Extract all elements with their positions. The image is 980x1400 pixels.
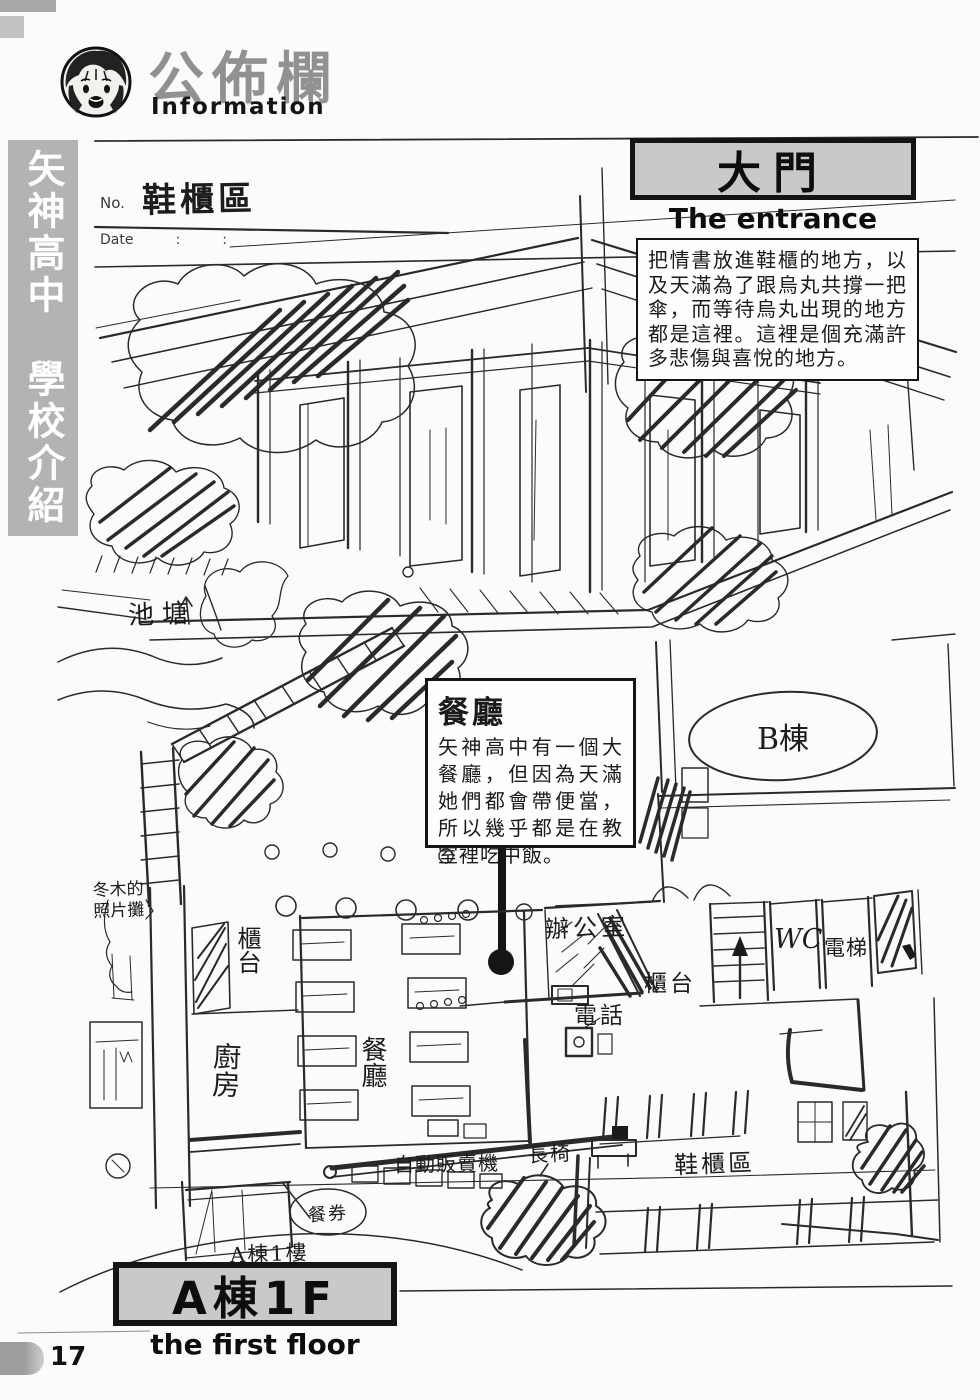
notepad-date-label: Date (100, 232, 133, 248)
notepad-date-row: Date : : (100, 232, 320, 248)
elevator-label: 電梯 (824, 932, 868, 962)
entrance-subtitle: The entrance (630, 202, 916, 235)
foliage-left-tree (128, 264, 415, 453)
notepad-colon-1: : (175, 232, 180, 248)
meal-ticket-label: 餐券 (299, 1198, 357, 1228)
entrance-title: 大門 (717, 137, 829, 201)
avatar-girl-icon (58, 44, 134, 120)
floor-title-box: A棟1F (113, 1262, 397, 1326)
bench-label: 長椅 (527, 1137, 572, 1168)
building-b-label: B棟 (683, 688, 883, 784)
pond-label: 池塘 (127, 593, 196, 632)
page-subtitle: Information (151, 94, 326, 120)
cafeteria-callout-box: 餐廳 矢神高中有一個大餐廳，但因為天滿她們都會帶便當，所以幾乎都是在教室裡吃中飯… (425, 678, 636, 848)
sidebar-chapter-text: 矢神高中 學校介紹 (24, 149, 62, 527)
vending-machine-label: 自動販賣機 (394, 1147, 499, 1178)
shoe-area-sketch-label: 鞋櫃區 (142, 171, 257, 222)
page-tab (0, 1342, 44, 1375)
sidebar-chapter-band: 矢神高中 學校介紹 (8, 140, 78, 536)
entrance-description-box: 把情書放進鞋櫃的地方，以及天滿為了跟烏丸共撐一把傘，而等待烏丸出現的地方都是這裡… (636, 238, 919, 381)
pond-sketch (58, 562, 288, 729)
manga-guide-page: { "page": { "number": "17" }, "header": … (0, 0, 980, 1400)
photo-stand-line1: 冬木的 (92, 879, 144, 902)
foliage-right-lower (633, 527, 788, 632)
notepad-no-label: No. (100, 194, 125, 212)
wc-label: WC (774, 924, 822, 955)
counter-right-label: 櫃台 (644, 964, 696, 998)
mid-tree-small (179, 737, 283, 828)
office-label: 辦公室 (544, 907, 629, 945)
floor-title: A棟1F (172, 1262, 338, 1327)
cafeteria-map-label: 餐廳 (354, 1036, 391, 1128)
floor-subtitle: the first floor (113, 1328, 397, 1361)
photo-stand-line2: 照片攤 (93, 900, 145, 923)
walkway-path (141, 628, 404, 906)
foliage-left-bush (86, 460, 239, 575)
telephone-label: 電話 (574, 996, 626, 1030)
kitchen-label: 廚房 (202, 1041, 245, 1138)
shoe-lockers-map-label: 鞋櫃區 (673, 1143, 755, 1181)
corner-mark (0, 0, 56, 12)
building-b-text: B棟 (757, 714, 809, 758)
cafeteria-description: 矢神高中有一個大餐廳，但因為天滿她們都會帶便當，所以幾乎都是在教室裡吃中飯。 (438, 734, 623, 869)
entrance-title-box: 大門 (630, 138, 916, 200)
counter-left-label: 櫃台 (230, 926, 265, 1006)
cafeteria-title: 餐廳 (438, 687, 623, 732)
notepad-colon-2: : (222, 232, 227, 248)
page-number: 17 (50, 1342, 86, 1372)
corner-mark-2 (0, 16, 24, 38)
photo-stand-label: 冬木的 照片攤 (92, 879, 144, 923)
